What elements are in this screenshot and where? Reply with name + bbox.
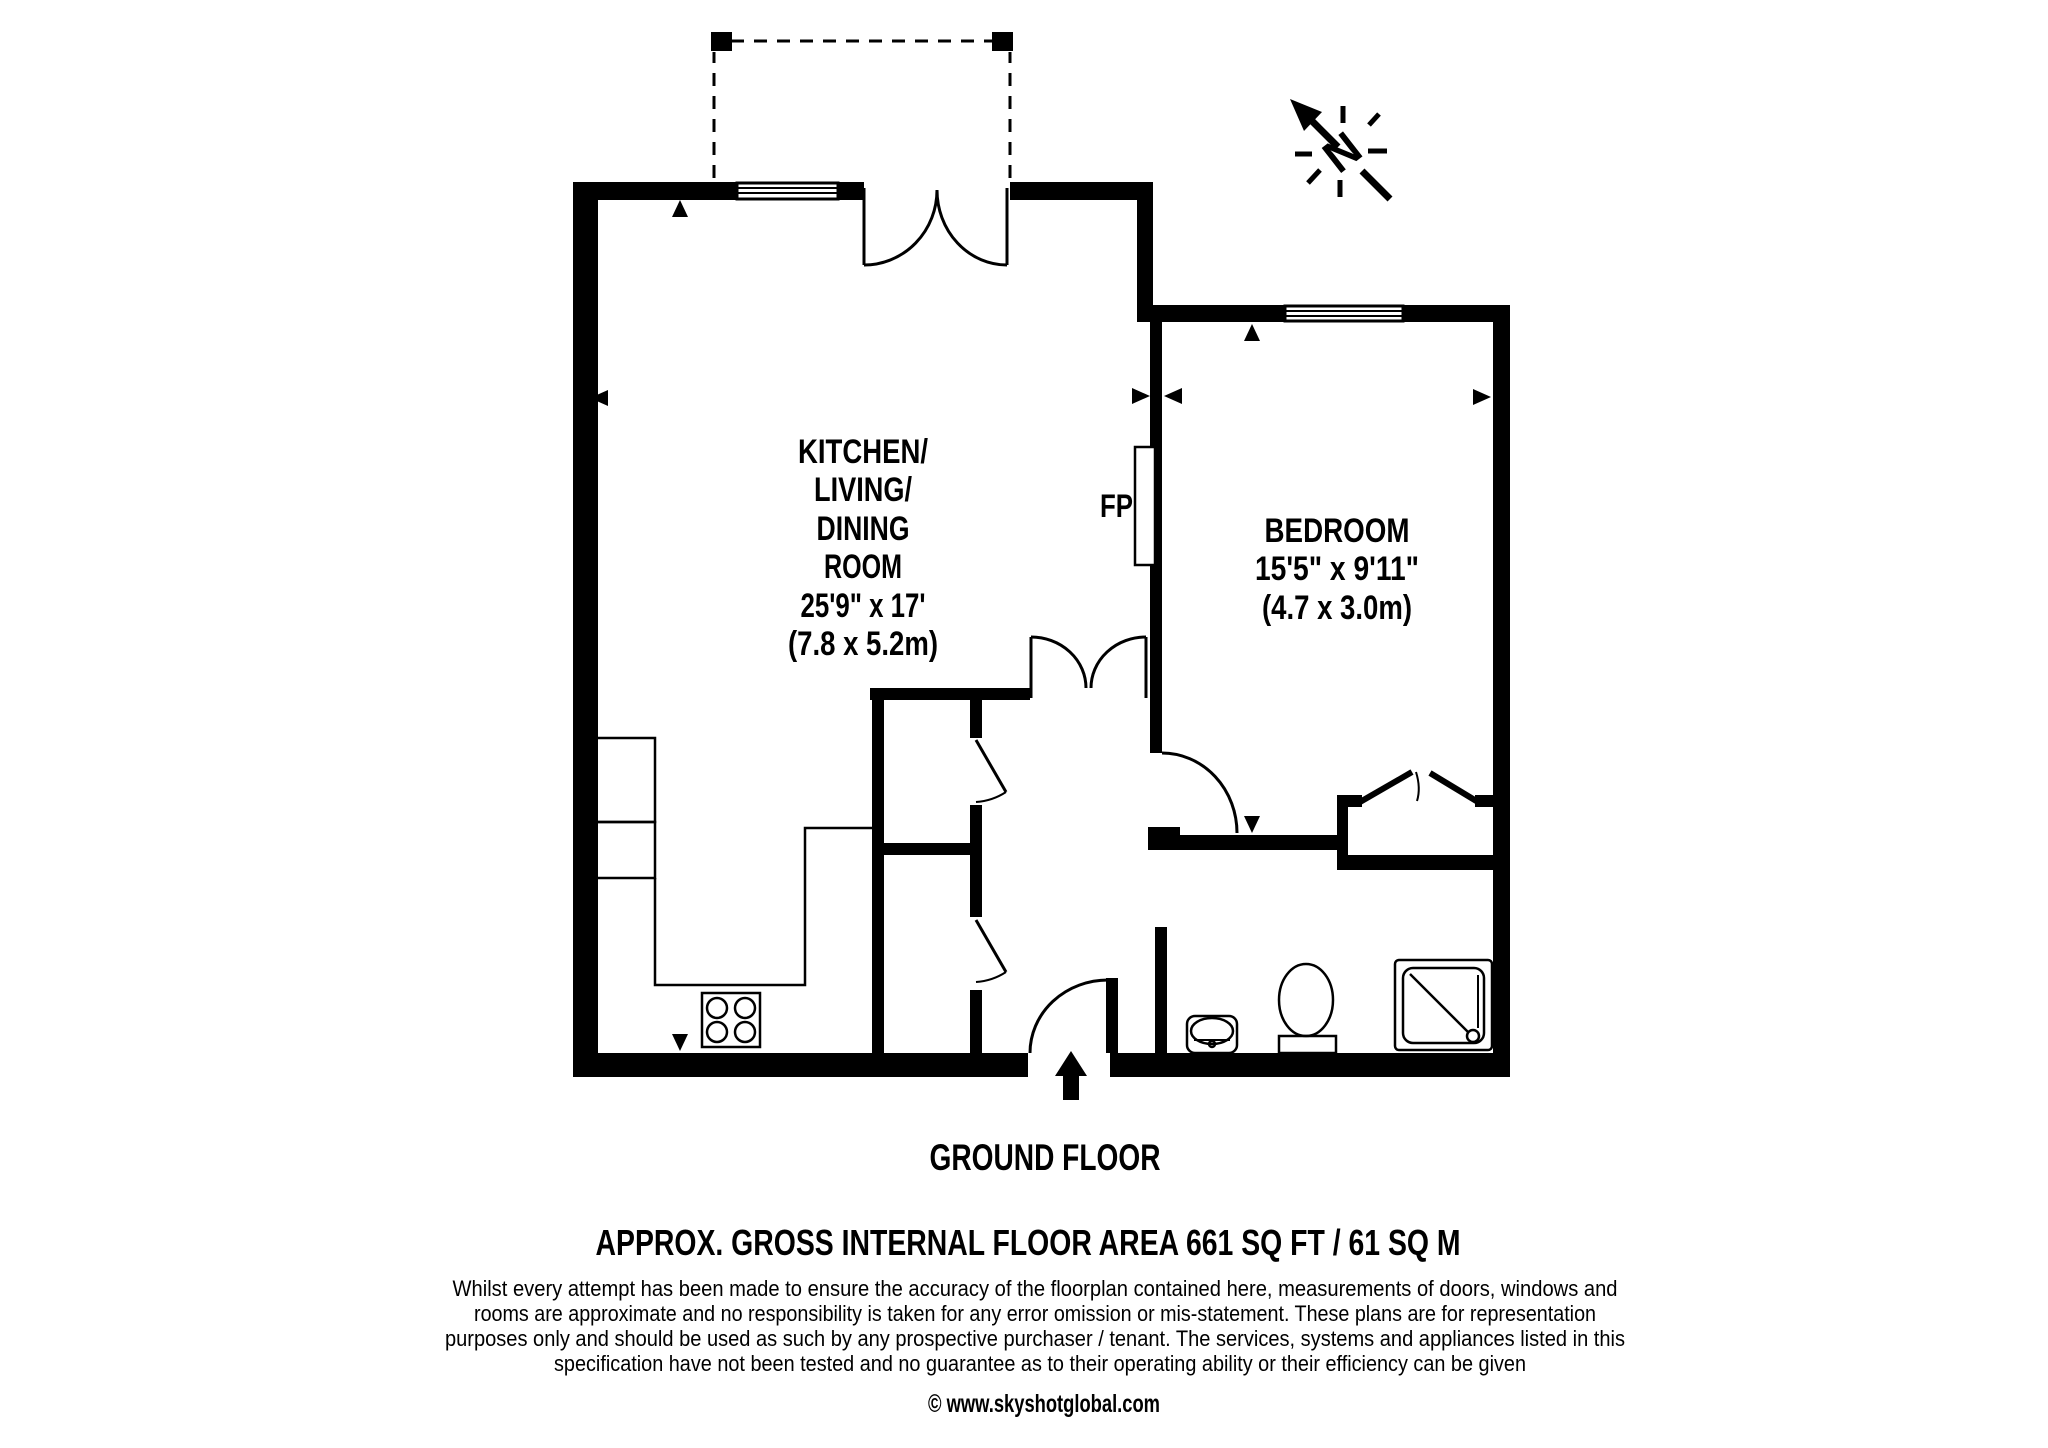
dim-arrow-bedroom-bottom-icon bbox=[1244, 816, 1260, 833]
dim-arrow-bedroom-top-icon bbox=[1244, 324, 1260, 341]
wall-top-right bbox=[1010, 182, 1153, 200]
wall-hall-bathroom bbox=[1148, 835, 1337, 850]
fireplace-label: FP bbox=[1100, 488, 1133, 524]
cupboard-door-2 bbox=[976, 920, 1006, 982]
kitchen-units bbox=[590, 738, 872, 1047]
entrance-door bbox=[1030, 980, 1108, 1053]
wall-hall-top bbox=[870, 688, 1030, 700]
copyright-text: © www.skyshotglobal.com bbox=[928, 1390, 1160, 1418]
disclaimer-line3: purposes only and should be used as such… bbox=[445, 1326, 1625, 1351]
labels: KITCHEN/ LIVING/ DINING ROOM 25'9" x 17'… bbox=[445, 433, 1625, 1418]
patio-post-left bbox=[711, 32, 732, 51]
bedroom-dim-imperial: 15'5" x 9'11" bbox=[1255, 550, 1419, 588]
wall-cupboard-right-3 bbox=[970, 990, 982, 1053]
bathroom-fixtures bbox=[1187, 960, 1492, 1053]
wall-right bbox=[1493, 305, 1510, 1077]
toilet-icon bbox=[1279, 964, 1336, 1053]
floor-title: GROUND FLOOR bbox=[930, 1137, 1161, 1178]
shower-icon bbox=[1395, 960, 1492, 1050]
fireplace-symbol bbox=[1135, 447, 1155, 565]
living-room-label-line1: KITCHEN/ bbox=[798, 433, 928, 471]
dim-arrow-bedroom-left-icon bbox=[1164, 388, 1182, 404]
window-symbol-living bbox=[737, 183, 838, 199]
kitchen-counter-1 bbox=[590, 738, 655, 822]
bedroom-label: BEDROOM bbox=[1265, 512, 1410, 550]
living-room-label-line2: LIVING/ bbox=[814, 471, 912, 509]
floorplan-page: N KITCHEN/ LIVING/ DINING ROOM 25'9" x 1… bbox=[0, 0, 2048, 1448]
dim-arrow-bedroom-right-icon bbox=[1473, 389, 1491, 405]
french-doors bbox=[864, 188, 1007, 265]
floor-plan: N KITCHEN/ LIVING/ DINING ROOM 25'9" x 1… bbox=[0, 0, 2048, 1448]
wall-cupboard-right-2 bbox=[970, 805, 982, 917]
wall-step-vertical bbox=[1137, 182, 1153, 322]
bedroom-door bbox=[1162, 753, 1237, 833]
hall-double-doors bbox=[1031, 637, 1146, 698]
disclaimer-line2: rooms are approximate and no responsibil… bbox=[474, 1301, 1596, 1326]
living-room-label-line3: DINING bbox=[817, 510, 910, 548]
wall-bathroom-left bbox=[1155, 927, 1167, 1053]
wall-cupboard-right-1 bbox=[970, 700, 982, 738]
disclaimer-line1: Whilst every attempt has been made to en… bbox=[453, 1276, 1618, 1301]
kitchen-counter-2 bbox=[590, 822, 655, 878]
living-room-dim-metric: (7.8 x 5.2m) bbox=[788, 625, 938, 663]
hob-icon bbox=[702, 993, 760, 1047]
living-room-label-line4: ROOM bbox=[824, 548, 902, 586]
sink-icon bbox=[1187, 1016, 1237, 1053]
wall-top-block bbox=[838, 182, 864, 200]
bedroom-dim-metric: (4.7 x 3.0m) bbox=[1262, 589, 1412, 627]
kitchen-counter-run bbox=[655, 828, 872, 985]
wall-cupboard-left bbox=[872, 700, 884, 1053]
dim-arrow-living-bottom-icon bbox=[672, 1034, 688, 1051]
cupboard-door-1 bbox=[976, 740, 1006, 802]
patio-post-right bbox=[992, 32, 1013, 51]
dim-arrow-living-top-icon bbox=[672, 200, 688, 217]
patio-dashed-outline bbox=[714, 41, 1010, 178]
wall-left bbox=[573, 182, 598, 1077]
dim-arrow-living-right-icon bbox=[1132, 388, 1150, 404]
area-title: APPROX. GROSS INTERNAL FLOOR AREA 661 SQ… bbox=[596, 1222, 1461, 1263]
north-compass-icon: N bbox=[1290, 99, 1390, 199]
windows bbox=[737, 183, 1403, 321]
living-room-dim-imperial: 25'9" x 17' bbox=[801, 587, 926, 625]
window-symbol-bedroom bbox=[1285, 306, 1403, 321]
disclaimer-line4: specification have not been tested and n… bbox=[554, 1351, 1526, 1376]
wall-cupboard-divider bbox=[877, 843, 975, 855]
wall-closet-bottom bbox=[1337, 855, 1493, 870]
